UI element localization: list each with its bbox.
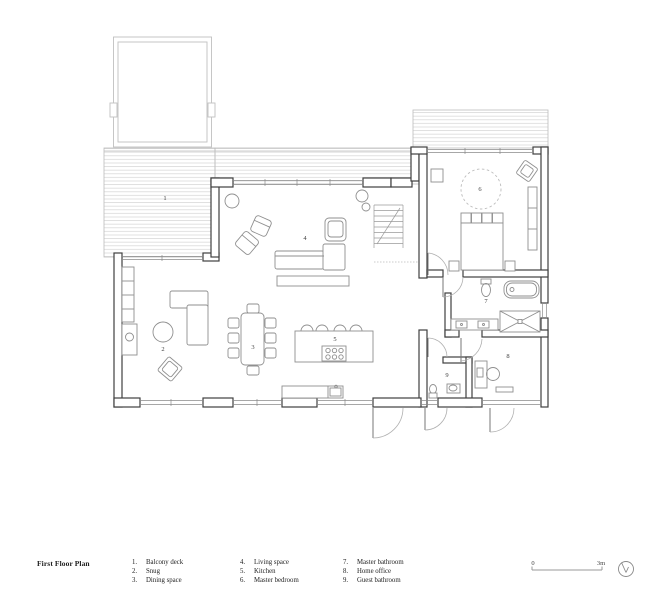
dining-chair — [228, 318, 239, 328]
kitchen-furniture — [282, 325, 373, 398]
legend-item-number: 2. — [132, 568, 146, 577]
room-label-master-bathroom: 7 — [484, 298, 488, 305]
dining-chair — [228, 333, 239, 343]
bathtub — [504, 281, 539, 298]
dining-chair — [228, 348, 239, 358]
legend-item-label: Dining space — [146, 577, 182, 586]
room-label-living-space: 4 — [303, 235, 307, 242]
legend-item-number: 1. — [132, 559, 146, 568]
legend-item: 5. Kitchen — [240, 568, 299, 577]
legend-item-number: 4. — [240, 559, 254, 568]
floor-plan-drawing: 4 2 3 — [0, 0, 660, 600]
legend-item: 1. Balcony deck — [132, 559, 183, 568]
dining-chair — [265, 333, 276, 343]
dining-chair — [247, 304, 259, 313]
toilet — [429, 385, 437, 399]
bedside-table — [505, 261, 515, 271]
roof-outline — [110, 37, 215, 147]
room-label-balcony-deck: 1 — [163, 195, 166, 202]
stairs — [374, 205, 419, 262]
legend-item-number: 8. — [343, 568, 357, 577]
plant-icon — [225, 194, 239, 208]
basin — [447, 384, 460, 393]
doors — [373, 253, 514, 438]
bedroom-furniture — [431, 160, 538, 271]
legend-item: 2. Snug — [132, 568, 183, 577]
living-space-furniture — [225, 190, 370, 286]
room-label-master-bedroom: 6 — [478, 186, 482, 193]
vanity — [451, 319, 498, 330]
legend-item-number: 5. — [240, 568, 254, 577]
sideboard — [122, 267, 134, 322]
legend-item-label: Master bedroom — [254, 577, 299, 586]
legend-column-2: 4. Living space 5. Kitchen 6. Master bed… — [240, 559, 299, 585]
corner-sofa — [170, 291, 208, 345]
legend-item-number: 9. — [343, 577, 357, 586]
floor-plan-page: 4 2 3 — [0, 0, 660, 600]
room-label-dining-space: 3 — [251, 344, 254, 351]
bar-stool — [334, 325, 346, 331]
legend-item-label: Guest bathroom — [357, 577, 401, 586]
guest-bathroom-furniture — [429, 384, 460, 398]
legend: First Floor Plan 1. Balcony deck 2. Snug… — [0, 557, 660, 597]
room-label-home-office: 8 — [506, 353, 509, 360]
bathroom-furniture — [451, 279, 540, 332]
room-label-snug: 2 — [161, 346, 164, 353]
bar-stool — [350, 325, 362, 331]
legend-item-number: 7. — [343, 559, 357, 568]
legend-item: 4. Living space — [240, 559, 299, 568]
legend-item: 6. Master bedroom — [240, 577, 299, 586]
bed — [461, 213, 503, 270]
armchair — [250, 215, 272, 237]
room-label-guest-bathroom: 9 — [445, 372, 448, 379]
legend-item: 8. Home office — [343, 568, 404, 577]
legend-item-label: Master bathroom — [357, 559, 404, 568]
sofa — [275, 244, 345, 270]
legend-item-number: 3. — [132, 577, 146, 586]
legend-item: 7. Master bathroom — [343, 559, 404, 568]
legend-item-label: Home office — [357, 568, 391, 577]
plan-title: First Floor Plan — [37, 559, 90, 568]
legend-item: 3. Dining space — [132, 577, 183, 586]
legend-item-label: Living space — [254, 559, 289, 568]
dining-furniture — [228, 304, 276, 375]
armchair — [325, 218, 346, 241]
legend-item-label: Balcony deck — [146, 559, 183, 568]
tv-bench — [277, 276, 349, 286]
shelf — [431, 169, 443, 182]
bar-stool — [301, 325, 313, 331]
dining-chair — [265, 318, 276, 328]
hob — [322, 346, 346, 361]
kitchen-counter — [282, 385, 343, 398]
plant-icon — [362, 203, 370, 211]
dining-chair — [247, 366, 259, 375]
legend-item-number: 6. — [240, 577, 254, 586]
wardrobe — [528, 187, 537, 250]
office-furniture — [475, 361, 513, 392]
dining-table — [241, 313, 264, 365]
armchair — [516, 160, 538, 182]
toilet — [481, 279, 491, 297]
snug-furniture — [122, 267, 208, 382]
coffee-table — [153, 322, 173, 342]
office-chair — [487, 368, 500, 381]
bar-stool — [316, 325, 328, 331]
armchair — [157, 356, 182, 381]
legend-column-3: 7. Master bathroom 8. Home office 9. Gue… — [343, 559, 404, 585]
stove — [122, 324, 137, 355]
legend-item-label: Kitchen — [254, 568, 276, 577]
legend-item: 9. Guest bathroom — [343, 577, 404, 586]
room-label-kitchen: 5 — [333, 336, 336, 343]
dining-chair — [265, 348, 276, 358]
legend-column-1: 1. Balcony deck 2. Snug 3. Dining space — [132, 559, 183, 585]
shower — [500, 311, 540, 332]
monitor — [477, 368, 483, 377]
rug — [496, 387, 513, 392]
bedside-table — [449, 261, 459, 271]
legend-item-label: Snug — [146, 568, 160, 577]
armchair — [234, 230, 259, 255]
plant-icon — [356, 190, 368, 202]
